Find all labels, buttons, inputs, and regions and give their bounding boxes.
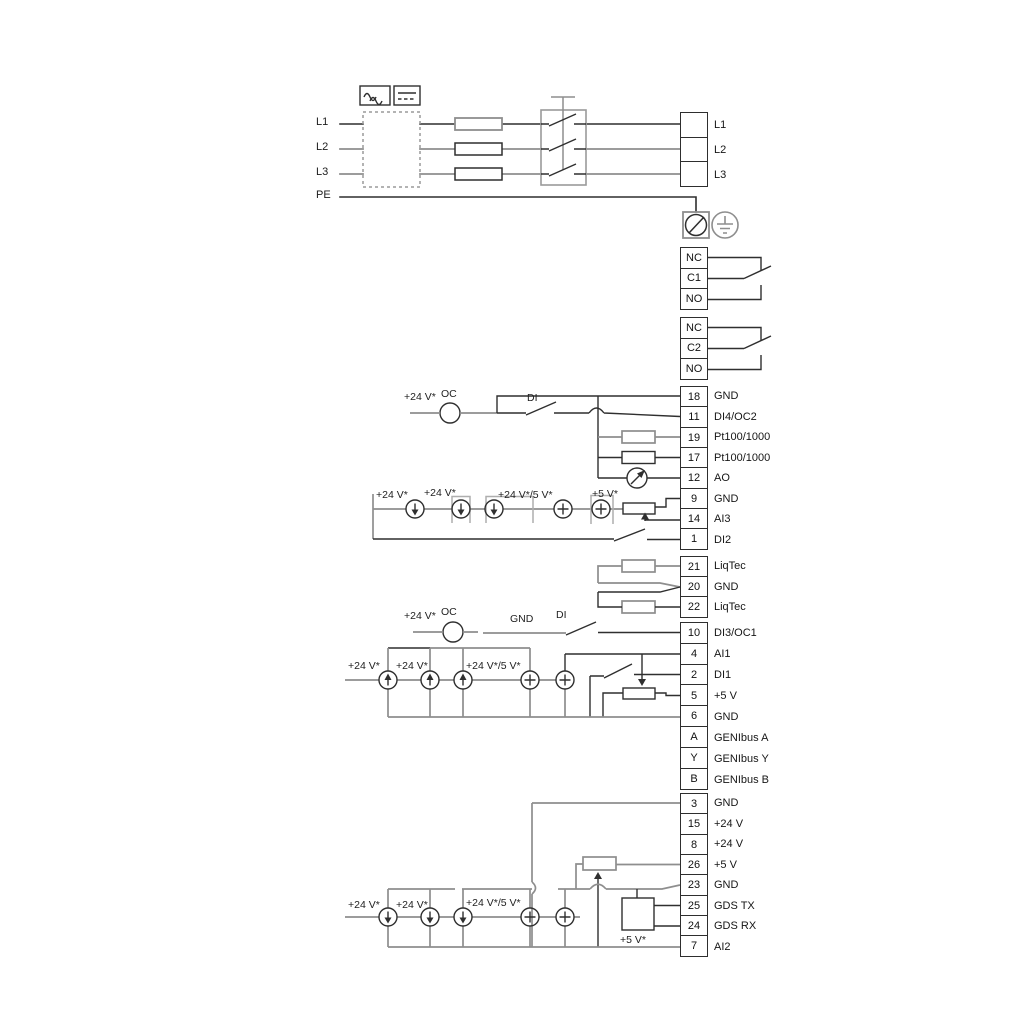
label-l2: L2 — [316, 141, 328, 153]
terminal-c1: C1 — [680, 268, 708, 290]
terminal-l1 — [680, 112, 708, 138]
terminal-3: 3 — [680, 793, 708, 815]
gnd-label: GND — [510, 613, 533, 625]
io-bottom-label-0: GND — [714, 793, 809, 814]
terminal-c2: C2 — [680, 338, 708, 360]
diagram-canvas — [0, 0, 1024, 1024]
terminal-10: 10 — [680, 622, 708, 644]
mains-terminal-block — [680, 112, 708, 187]
mains-label-l3: L3 — [714, 162, 809, 187]
label-l1: L1 — [316, 116, 328, 128]
supply-label: +24 V* — [404, 391, 436, 403]
pt100-sensor-2 — [598, 452, 680, 464]
io-bottom-label-3: +5 V — [714, 855, 809, 876]
terminal-14: 14 — [680, 508, 708, 530]
earth-symbol-icon — [712, 212, 738, 238]
terminal-y: Y — [680, 747, 708, 769]
io-mid-terminal-block: 18 11 19 17 12 9 14 1 — [680, 386, 708, 550]
io-mid-label-5: GND — [714, 489, 809, 510]
resistor — [622, 431, 655, 443]
ao-meter-icon — [598, 468, 680, 488]
terminal-2: 2 — [680, 664, 708, 686]
ai3-circuit — [373, 494, 680, 541]
supply-label: +5 V* — [592, 488, 618, 500]
terminal-15: 15 — [680, 813, 708, 835]
io-mid-label-4: AO — [714, 468, 809, 489]
io-bottom-label-2: +24 V — [714, 834, 809, 855]
supply-label: +5 V* — [620, 934, 646, 946]
io-bottom-label-7: AI2 — [714, 937, 809, 958]
liqtec-terminal-block: 21 20 22 — [680, 556, 708, 618]
gds-sensor-box — [622, 889, 680, 930]
terminal-5: 5 — [680, 684, 708, 706]
io-low-label-0: DI3/OC1 — [714, 622, 809, 643]
relay1-contact — [708, 258, 771, 300]
resistor — [622, 452, 655, 464]
di-switch — [566, 622, 680, 635]
io-low-label-5: GENIbus A — [714, 727, 809, 748]
io-bottom-label-1: +24 V — [714, 814, 809, 835]
io-low-label-4: GND — [714, 706, 809, 727]
supply-label: +24 V*/5 V* — [498, 489, 553, 501]
relay2-terminal-block: NC C2 NO — [680, 317, 708, 380]
terminal-9: 9 — [680, 488, 708, 510]
di2-switch — [373, 529, 680, 541]
terminal-6: 6 — [680, 705, 708, 727]
terminal-20: 20 — [680, 576, 708, 598]
terminal-7: 7 — [680, 935, 708, 957]
terminal-17: 17 — [680, 447, 708, 469]
supply-label: +24 V* — [404, 610, 436, 622]
supply-label: +24 V* — [348, 899, 380, 911]
open-collector-icon — [443, 622, 463, 642]
io-mid-label-6: AI3 — [714, 509, 809, 530]
supply-label: +24 V* — [396, 660, 428, 672]
terminal-no1: NO — [680, 288, 708, 310]
pt100-sensor-1 — [598, 431, 680, 443]
fuses — [455, 118, 502, 180]
fuse-l1 — [455, 118, 502, 130]
io-low-label-3: +5 V — [714, 685, 809, 706]
supply-label: +24 V* — [376, 489, 408, 501]
io-low-label-2: DI1 — [714, 664, 809, 685]
current-source-icons — [379, 671, 472, 689]
open-collector-icon — [440, 403, 460, 423]
ai1-circuit — [345, 648, 680, 717]
liqtec-label-2: LiqTec — [714, 597, 809, 618]
terminal-21: 21 — [680, 556, 708, 578]
io-bottom-label-5: GDS TX — [714, 896, 809, 917]
resistor — [622, 601, 655, 613]
pe-wire — [340, 197, 696, 212]
di-label: DI — [556, 609, 567, 621]
terminal-26: 26 — [680, 854, 708, 876]
io-bottom-label-4: GND — [714, 875, 809, 896]
supply-label: +24 V*/5 V* — [466, 897, 521, 909]
terminal-no2: NO — [680, 358, 708, 380]
supply-label: +24 V* — [396, 899, 428, 911]
mains-label-l1: L1 — [714, 112, 809, 137]
terminal-11: 11 — [680, 406, 708, 428]
mains-label-l2: L2 — [714, 137, 809, 162]
label-l3: L3 — [316, 166, 328, 178]
io-low-label-1: AI1 — [714, 643, 809, 664]
supply-label: +24 V* — [424, 487, 456, 499]
liqtec-label-0: LiqTec — [714, 556, 809, 577]
current-source-icons — [406, 500, 503, 518]
supply-label: +24 V*/5 V* — [466, 660, 521, 672]
io-low-terminal-block: 10 4 2 5 6 A Y B — [680, 622, 708, 790]
terminal-b: B — [680, 768, 708, 790]
terminal-1: 1 — [680, 528, 708, 550]
io-mid-label-1: DI4/OC2 — [714, 407, 809, 428]
terminal-8: 8 — [680, 834, 708, 856]
terminal-19: 19 — [680, 427, 708, 449]
terminal-25: 25 — [680, 895, 708, 917]
terminal-l3 — [680, 161, 708, 187]
liqtec-wiring — [598, 560, 680, 613]
terminal-12: 12 — [680, 467, 708, 489]
relay2-contact — [708, 328, 771, 370]
io-bottom-label-6: GDS RX — [714, 916, 809, 937]
mains-wiring — [340, 124, 696, 212]
terminal-24: 24 — [680, 915, 708, 937]
potentiometer — [603, 688, 680, 717]
io-mid-label-2: Pt100/1000 — [714, 427, 809, 448]
main-switch — [541, 97, 586, 185]
terminal-22: 22 — [680, 596, 708, 618]
resistor — [622, 560, 655, 572]
io-mid-label-7: DI2 — [714, 530, 809, 551]
ac-symbol-icon — [360, 86, 390, 105]
dc-symbol-icon — [394, 86, 420, 105]
screw-terminal-icon — [683, 212, 709, 238]
potentiometer — [623, 499, 680, 522]
terminal-23: 23 — [680, 874, 708, 896]
oc-label: OC — [441, 606, 457, 618]
terminal-nc1: NC — [680, 247, 708, 269]
io-mid-label-0: GND — [714, 386, 809, 407]
terminal-18: 18 — [680, 386, 708, 408]
potentiometer — [576, 857, 680, 889]
wiring-diagram: L1 L2 L3 PE L1 L2 L3 NC C1 NO NC C2 NO 1… — [0, 0, 1024, 1024]
fuse-l2 — [455, 143, 502, 155]
io-low-label-6: GENIbus Y — [714, 748, 809, 769]
relay1-terminal-block: NC C1 NO — [680, 247, 708, 310]
io-bottom-terminal-block: 3 15 8 26 23 25 24 7 — [680, 793, 708, 957]
terminal-l2 — [680, 137, 708, 163]
terminal-4: 4 — [680, 643, 708, 665]
fuse-l3 — [455, 168, 502, 180]
terminal-nc2: NC — [680, 317, 708, 339]
terminal-a: A — [680, 726, 708, 748]
di-label: DI — [527, 392, 538, 404]
converter-box — [363, 112, 420, 187]
io-low-label-7: GENIbus B — [714, 769, 809, 790]
liqtec-label-1: GND — [714, 577, 809, 598]
oc-label: OC — [441, 388, 457, 400]
di3-oc1-wiring — [413, 622, 680, 642]
label-pe: PE — [316, 189, 331, 201]
io-mid-label-3: Pt100/1000 — [714, 448, 809, 469]
supply-label: +24 V* — [348, 660, 380, 672]
ai2-gds-circuit — [345, 803, 680, 947]
